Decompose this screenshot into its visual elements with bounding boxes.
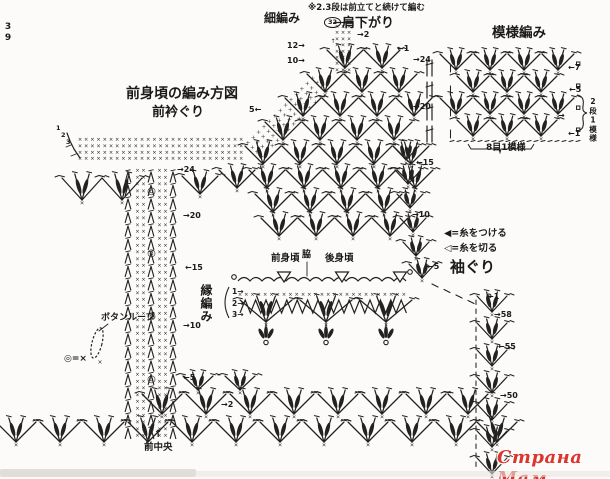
svg-text:×: × — [383, 292, 387, 298]
svg-text:×: × — [135, 379, 139, 385]
svg-text:×: × — [121, 143, 125, 149]
row-mark-left-2: →2 — [221, 401, 233, 409]
row-mark-swatch-7: ←7 — [568, 64, 580, 72]
svg-text:×: × — [158, 143, 162, 149]
svg-text:◎: ◎ — [147, 374, 156, 385]
legend-attach-yarn: ◀=糸をつける — [444, 229, 507, 239]
svg-text:×: × — [157, 318, 161, 324]
svg-text:×: × — [141, 263, 145, 269]
svg-text:×: × — [141, 236, 145, 242]
svg-text:×: × — [157, 256, 161, 262]
svg-text:×: × — [127, 137, 131, 143]
edge-title: 縁編み — [200, 284, 212, 323]
svg-text:×: × — [152, 150, 156, 156]
page-number: 39 — [3, 22, 12, 44]
svg-text:×: × — [410, 443, 415, 449]
svg-text:×: × — [163, 379, 167, 385]
svg-text:×: × — [141, 182, 145, 188]
svg-text:×: × — [141, 256, 145, 262]
svg-text:×: × — [404, 161, 409, 167]
svg-text:×: × — [163, 256, 167, 262]
svg-text:×: × — [121, 150, 125, 156]
svg-text:×: × — [140, 156, 144, 162]
row-mark-band-5: 5← — [249, 106, 261, 114]
svg-text:×: × — [277, 237, 282, 243]
svg-text:×: × — [388, 237, 393, 243]
svg-text:×: × — [345, 292, 349, 298]
svg-text:×: × — [163, 168, 167, 174]
svg-text:×: × — [239, 137, 243, 143]
sc-title: 細編み — [264, 12, 300, 24]
svg-text:×: × — [157, 331, 161, 337]
svg-text:×: × — [90, 143, 94, 149]
svg-text:×: × — [141, 352, 145, 358]
collar-row-3: 3 — [66, 139, 71, 146]
armhole-title: 袖ぐり — [450, 260, 495, 275]
svg-text:×: × — [227, 150, 231, 156]
svg-text:×: × — [292, 415, 297, 421]
svg-text:×: × — [314, 237, 319, 243]
svg-text:×: × — [163, 318, 167, 324]
svg-text:×: × — [157, 352, 161, 358]
svg-text:×: × — [141, 229, 145, 235]
svg-text:×: × — [278, 443, 283, 449]
svg-text:×: × — [239, 156, 243, 162]
svg-text:×: × — [326, 292, 330, 298]
svg-text:×: × — [141, 304, 145, 310]
svg-text:×: × — [146, 150, 150, 156]
svg-text:×: × — [307, 292, 311, 298]
svg-text:×: × — [141, 386, 145, 392]
svg-text:×: × — [141, 379, 145, 385]
svg-text:×: × — [157, 168, 161, 174]
collar-row-2: 2 — [61, 132, 66, 139]
svg-text:×: × — [163, 426, 167, 432]
svg-text:×: × — [163, 195, 167, 201]
svg-text:×: × — [141, 399, 145, 405]
svg-text:×: × — [157, 229, 161, 235]
svg-text:×: × — [163, 433, 167, 439]
edge-row-2: 2→ — [232, 300, 244, 308]
svg-text:×: × — [157, 372, 161, 378]
svg-text:×: × — [152, 137, 156, 143]
svg-text:×: × — [121, 137, 125, 143]
svg-text:×: × — [220, 137, 224, 143]
svg-text:×: × — [189, 150, 193, 156]
sub-title: 前衿ぐり — [152, 106, 204, 119]
svg-text:×: × — [454, 443, 459, 449]
svg-text:×: × — [158, 137, 162, 143]
svg-text:×: × — [158, 156, 162, 162]
svg-text:×: × — [135, 209, 139, 215]
svg-text:×: × — [157, 202, 161, 208]
svg-text:×: × — [157, 216, 161, 222]
svg-text:×: × — [141, 297, 145, 303]
svg-text:×: × — [163, 270, 167, 276]
svg-text:×: × — [341, 30, 345, 36]
scan-smudge-left — [0, 469, 196, 477]
svg-text:×: × — [140, 137, 144, 143]
band-stitch-count: 32 — [324, 17, 341, 28]
svg-text:×: × — [135, 236, 139, 242]
svg-text:×: × — [141, 222, 145, 228]
svg-text:×: × — [135, 270, 139, 276]
svg-text:×: × — [135, 386, 139, 392]
svg-text:×: × — [341, 36, 345, 42]
svg-text:×: × — [341, 43, 345, 49]
svg-text:×: × — [115, 143, 119, 149]
svg-text:×: × — [141, 250, 145, 256]
edge-row-3: 3→ — [232, 311, 244, 319]
svg-text:×: × — [208, 156, 212, 162]
svg-text:×: × — [163, 358, 167, 364]
svg-text:×: × — [157, 324, 161, 330]
button-loop-label: ボタンループ — [101, 314, 154, 323]
svg-text:×: × — [96, 150, 100, 156]
svg-text:×: × — [171, 143, 175, 149]
svg-text:×: × — [420, 279, 425, 285]
row-mark-right-24: →24 — [413, 56, 431, 64]
svg-text:×: × — [335, 49, 339, 55]
svg-text:×: × — [364, 292, 368, 298]
svg-text:×: × — [115, 137, 119, 143]
svg-text:×: × — [135, 304, 139, 310]
svg-text:×: × — [171, 156, 175, 162]
svg-text:×: × — [163, 243, 167, 249]
swatch-title: 模様編み — [492, 27, 546, 41]
row-mark-side-55: ←55 — [498, 343, 516, 351]
svg-text:×: × — [135, 188, 139, 194]
svg-text:×: × — [165, 150, 169, 156]
svg-text:×: × — [96, 137, 100, 143]
row-mark-right-15: ←15 — [416, 159, 434, 167]
svg-text:×: × — [163, 209, 167, 215]
svg-text:×: × — [80, 201, 85, 207]
svg-text:×: × — [163, 175, 167, 181]
row-mark-band-10: 10→ — [287, 57, 305, 65]
svg-text:×: × — [239, 150, 243, 156]
swatch-repeat-width: 8目1模様 — [486, 144, 526, 153]
svg-text:×: × — [141, 324, 145, 330]
svg-text:×: × — [157, 386, 161, 392]
svg-text:×: × — [141, 372, 145, 378]
row-mark-right-20: →20 — [413, 103, 431, 111]
svg-text:×: × — [370, 292, 374, 298]
svg-text:×: × — [163, 372, 167, 378]
svg-text:×: × — [389, 292, 393, 298]
row-mark-swatch-5: ←5 — [569, 86, 581, 94]
svg-text:×: × — [335, 30, 339, 36]
svg-text:×: × — [78, 143, 82, 149]
svg-text:×: × — [157, 175, 161, 181]
side-label: 脇 — [302, 251, 311, 260]
svg-text:×: × — [406, 185, 411, 191]
svg-text:×: × — [183, 150, 187, 156]
svg-text:×: × — [135, 175, 139, 181]
svg-text:×: × — [127, 150, 131, 156]
back-body-label: 後身頃 — [325, 254, 354, 264]
shoulder-title: 肩下がり — [342, 17, 394, 30]
collar-row-1: 1 — [56, 125, 61, 132]
svg-text:×: × — [177, 156, 181, 162]
svg-text:×: × — [163, 202, 167, 208]
row-mark-side-50: →50 — [500, 392, 518, 400]
svg-text:×: × — [490, 367, 495, 373]
svg-text:×: × — [141, 345, 145, 351]
svg-text:×: × — [152, 156, 156, 162]
svg-text:×: × — [127, 156, 131, 162]
svg-text:×: × — [163, 324, 167, 330]
svg-text:×: × — [163, 236, 167, 242]
svg-text:×: × — [163, 338, 167, 344]
svg-text:×: × — [233, 137, 237, 143]
svg-text:×: × — [157, 297, 161, 303]
row-mark-side-58: →58 — [494, 311, 512, 319]
svg-text:×: × — [183, 143, 187, 149]
svg-text:×: × — [347, 36, 351, 42]
svg-text:×: × — [157, 358, 161, 364]
svg-text:×: × — [157, 243, 161, 249]
svg-text:×: × — [227, 137, 231, 143]
svg-text:×: × — [163, 263, 167, 269]
svg-text:×: × — [141, 277, 145, 283]
svg-text:×: × — [157, 345, 161, 351]
svg-text:×: × — [141, 338, 145, 344]
svg-text:×: × — [78, 137, 82, 143]
svg-text:×: × — [163, 188, 167, 194]
svg-text:×: × — [198, 195, 203, 201]
svg-text:×: × — [90, 150, 94, 156]
svg-text:×: × — [189, 156, 193, 162]
svg-text:◎: ◎ — [147, 186, 156, 197]
svg-text:×: × — [288, 292, 292, 298]
svg-text:×: × — [157, 290, 161, 296]
front-center-label: 前中央 — [144, 443, 173, 453]
svg-text:×: × — [214, 137, 218, 143]
row-mark-left-20: →20 — [183, 212, 201, 220]
svg-text:×: × — [269, 292, 273, 298]
svg-text:×: × — [103, 156, 107, 162]
svg-text:×: × — [163, 182, 167, 188]
svg-text:×: × — [177, 150, 181, 156]
svg-text:×: × — [196, 156, 200, 162]
svg-text:×: × — [157, 222, 161, 228]
svg-text:×: × — [135, 406, 139, 412]
loop-symbol-note: ◎=× — [64, 355, 87, 364]
svg-text:×: × — [358, 292, 362, 298]
svg-text:×: × — [214, 150, 218, 156]
svg-text:×: × — [202, 137, 206, 143]
svg-text:×: × — [135, 420, 139, 426]
svg-text:×: × — [263, 292, 267, 298]
svg-text:×: × — [244, 292, 248, 298]
svg-text:×: × — [189, 137, 193, 143]
svg-text:×: × — [157, 263, 161, 269]
svg-text:×: × — [366, 443, 371, 449]
svg-text:×: × — [466, 415, 471, 421]
svg-text:×: × — [202, 156, 206, 162]
svg-text:×: × — [190, 443, 195, 449]
svg-text:×: × — [177, 137, 181, 143]
svg-text:×: × — [490, 394, 495, 400]
front-center-arrow: ↑ — [154, 430, 162, 440]
svg-text:×: × — [163, 284, 167, 290]
svg-text:×: × — [163, 297, 167, 303]
svg-text:×: × — [157, 195, 161, 201]
svg-text:×: × — [171, 150, 175, 156]
svg-text:×: × — [227, 156, 231, 162]
svg-text:×: × — [135, 182, 139, 188]
row-mark-left-15: ←15 — [185, 264, 203, 272]
svg-text:×: × — [146, 137, 150, 143]
row-mark-side-1: ←1 — [487, 293, 499, 301]
svg-text:×: × — [135, 284, 139, 290]
svg-text:×: × — [135, 277, 139, 283]
svg-text:×: × — [115, 150, 119, 156]
svg-text:×: × — [163, 352, 167, 358]
svg-text:×: × — [152, 143, 156, 149]
svg-text:×: × — [135, 372, 139, 378]
svg-text:×: × — [163, 277, 167, 283]
svg-text:×: × — [135, 331, 139, 337]
svg-text:×: × — [109, 156, 113, 162]
svg-text:×: × — [134, 156, 138, 162]
svg-text:×: × — [135, 297, 139, 303]
svg-text:×: × — [140, 143, 144, 149]
svg-text:×: × — [134, 137, 138, 143]
svg-text:×: × — [163, 250, 167, 256]
svg-text:×: × — [157, 420, 161, 426]
svg-text:×: × — [157, 338, 161, 344]
svg-text:×: × — [220, 150, 224, 156]
svg-text:×: × — [163, 222, 167, 228]
svg-text:×: × — [84, 150, 88, 156]
svg-text:×: × — [96, 143, 100, 149]
svg-text:×: × — [109, 150, 113, 156]
svg-text:×: × — [301, 292, 305, 298]
svg-text:×: × — [109, 143, 113, 149]
svg-text:×: × — [238, 391, 243, 397]
svg-text:×: × — [208, 137, 212, 143]
svg-text:×: × — [134, 150, 138, 156]
svg-text:×: × — [135, 216, 139, 222]
svg-text:×: × — [84, 156, 88, 162]
svg-text:×: × — [127, 143, 131, 149]
svg-text:×: × — [141, 195, 145, 201]
svg-text:×: × — [135, 345, 139, 351]
svg-text:×: × — [135, 352, 139, 358]
row-mark-shoulder-2: →2 — [357, 31, 369, 39]
svg-text:×: × — [183, 137, 187, 143]
svg-text:×: × — [208, 143, 212, 149]
svg-text:×: × — [135, 195, 139, 201]
row-mark-shoulder-1: ←1 — [397, 45, 409, 53]
svg-text:×: × — [163, 229, 167, 235]
svg-text:×: × — [140, 150, 144, 156]
svg-text:×: × — [141, 270, 145, 276]
svg-text:×: × — [121, 156, 125, 162]
svg-text:×: × — [141, 209, 145, 215]
svg-text:×: × — [347, 30, 351, 36]
svg-text:×: × — [165, 143, 169, 149]
svg-text:×: × — [135, 324, 139, 330]
row-mark-left-10: →10 — [183, 322, 201, 330]
svg-text:↑: ↑ — [330, 38, 335, 45]
svg-text:×: × — [103, 137, 107, 143]
svg-text:×: × — [233, 156, 237, 162]
svg-text:×: × — [163, 304, 167, 310]
svg-text:×: × — [146, 143, 150, 149]
svg-text:×: × — [141, 365, 145, 371]
svg-text:×: × — [135, 338, 139, 344]
svg-text:×: × — [141, 331, 145, 337]
svg-text:×: × — [163, 386, 167, 392]
svg-text:×: × — [235, 189, 240, 195]
row-mark-right-10: →10 — [412, 211, 430, 219]
svg-text:×: × — [14, 443, 19, 449]
svg-text:×: × — [141, 413, 145, 419]
svg-text:×: × — [165, 137, 169, 143]
svg-text:×: × — [163, 345, 167, 351]
svg-text:×: × — [202, 143, 206, 149]
svg-text:×: × — [135, 222, 139, 228]
svg-text:×: × — [141, 216, 145, 222]
edge-row-1: 1→ — [232, 288, 244, 296]
svg-text:×: × — [90, 156, 94, 162]
svg-text:×: × — [84, 143, 88, 149]
svg-text:×: × — [135, 263, 139, 269]
svg-text:×: × — [339, 292, 343, 298]
svg-text:×: × — [141, 168, 145, 174]
svg-text:×: × — [196, 150, 200, 156]
svg-text:×: × — [183, 156, 187, 162]
svg-text:×: × — [135, 202, 139, 208]
svg-text:×: × — [157, 379, 161, 385]
svg-text:×: × — [157, 284, 161, 290]
svg-text:×: × — [141, 290, 145, 296]
svg-text:×: × — [90, 137, 94, 143]
svg-text:×: × — [135, 290, 139, 296]
svg-text:×: × — [160, 415, 165, 421]
swatch-repeat-height: 2段1模様 — [589, 97, 597, 143]
svg-text:×: × — [135, 229, 139, 235]
svg-text:×: × — [402, 292, 406, 298]
svg-text:×: × — [135, 243, 139, 249]
svg-text:×: × — [320, 292, 324, 298]
svg-text:×: × — [135, 256, 139, 262]
svg-text:×: × — [58, 443, 63, 449]
svg-text:×: × — [248, 415, 253, 421]
row-mark-band-12: 12→ — [287, 42, 305, 50]
scan-smudge-right — [196, 471, 610, 477]
svg-text:×: × — [96, 156, 100, 162]
svg-text:◎: ◎ — [147, 248, 156, 259]
svg-text:×: × — [157, 304, 161, 310]
svg-text:×: × — [135, 392, 139, 398]
svg-text:×: × — [208, 150, 212, 156]
svg-text:×: × — [336, 415, 341, 421]
svg-text:×: × — [163, 311, 167, 317]
svg-text:×: × — [141, 406, 145, 412]
svg-text:×: × — [102, 443, 107, 449]
svg-text:×: × — [141, 202, 145, 208]
svg-text:×: × — [157, 182, 161, 188]
svg-text:×: × — [269, 142, 276, 149]
svg-text:×: × — [134, 143, 138, 149]
crochet-chart-svg: ××××××××××××××××××××××××××××××××××××××××… — [0, 0, 610, 479]
svg-text:×: × — [157, 270, 161, 276]
svg-text:×: × — [163, 365, 167, 371]
